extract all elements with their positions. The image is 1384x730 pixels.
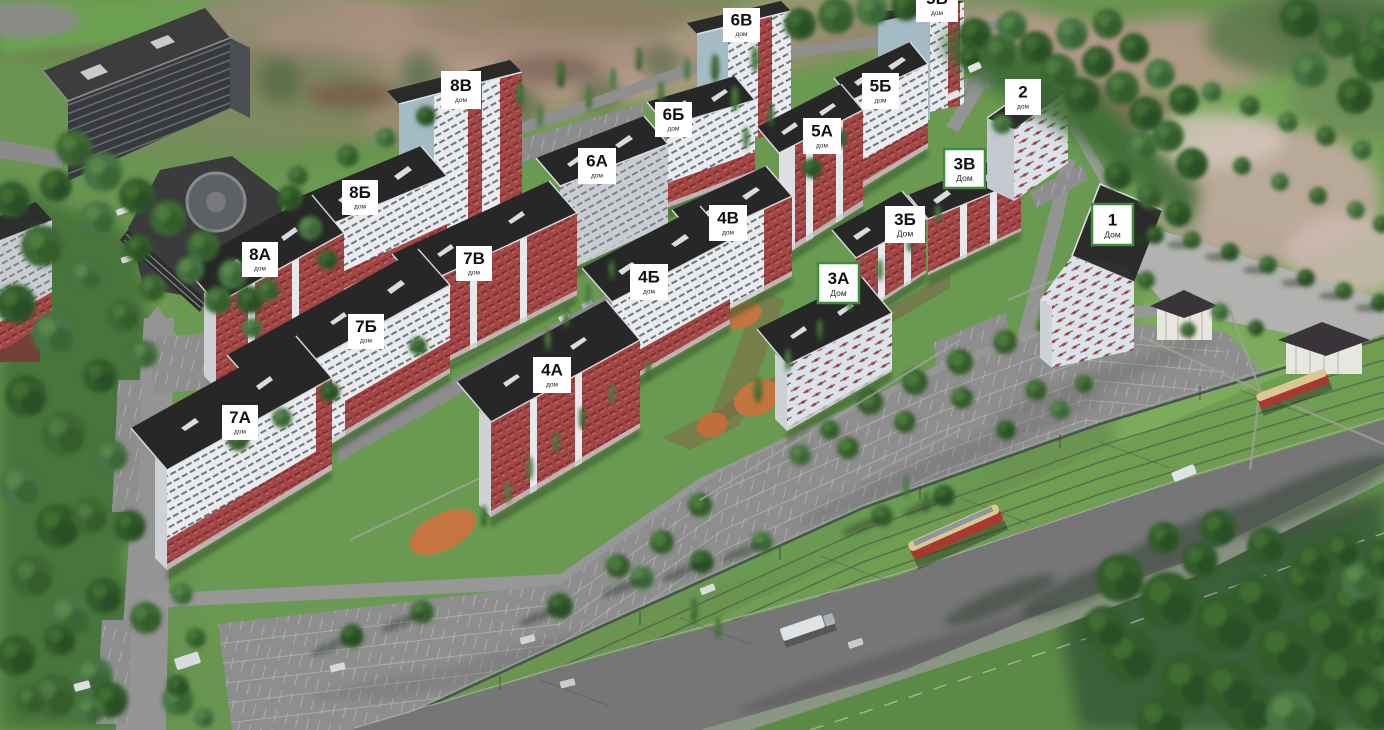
svg-text:8Б: 8Б [349,183,371,202]
svg-text:дом: дом [875,98,887,105]
svg-text:1: 1 [1108,210,1117,229]
svg-text:дом: дом [668,126,680,133]
svg-text:дом: дом [234,429,246,436]
svg-text:дом: дом [455,97,467,104]
svg-text:6Б: 6Б [663,105,685,124]
svg-text:5Б: 5Б [870,77,892,96]
svg-text:4В: 4В [717,209,739,228]
svg-text:дом: дом [816,143,828,150]
svg-text:7Б: 7Б [355,317,377,336]
svg-text:Дом: Дом [897,228,914,238]
svg-text:8В: 8В [450,76,472,95]
svg-text:4Б: 4Б [638,268,660,287]
svg-text:3В: 3В [954,154,976,173]
svg-text:дом: дом [254,266,266,273]
svg-text:6В: 6В [731,11,753,30]
svg-text:3Б: 3Б [894,210,916,229]
svg-text:дом: дом [1017,104,1029,111]
svg-text:7В: 7В [463,249,485,268]
svg-text:дом: дом [643,289,655,296]
svg-text:Дом: Дом [830,288,847,298]
svg-text:5А: 5А [811,122,833,141]
svg-text:2: 2 [1018,83,1027,102]
svg-text:дом: дом [736,31,748,38]
svg-text:дом: дом [360,338,372,345]
svg-text:7А: 7А [229,408,251,427]
svg-text:дом: дом [546,382,558,389]
svg-text:дом: дом [591,173,603,180]
svg-text:3А: 3А [828,269,850,288]
svg-text:Дом: Дом [956,173,973,183]
svg-text:дом: дом [722,230,734,237]
svg-text:дом: дом [468,270,480,277]
svg-text:4А: 4А [541,361,563,380]
svg-text:дом: дом [931,10,943,17]
svg-text:5В: 5В [926,0,948,8]
svg-text:8А: 8А [249,245,271,264]
svg-text:Дом: Дом [1104,230,1121,240]
svg-text:дом: дом [354,204,366,211]
svg-text:6А: 6А [586,152,608,171]
